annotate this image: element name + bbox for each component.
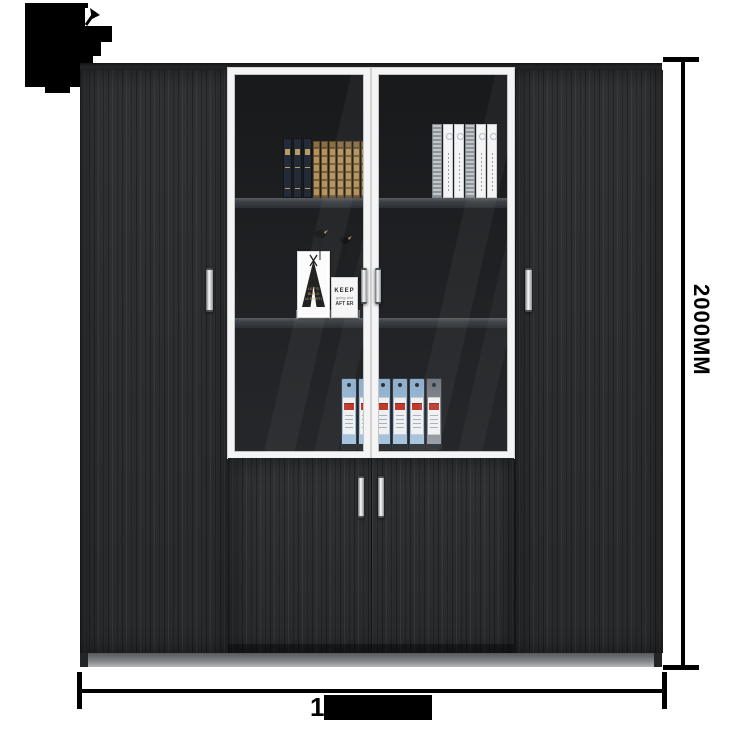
glass-door-handle-right	[375, 268, 381, 304]
height-dimension-label: 2000MM	[688, 284, 714, 376]
lower-door-handle-left	[358, 476, 364, 518]
glass-door-left	[228, 68, 370, 458]
height-dimension-line	[681, 60, 685, 668]
plinth-corner-left	[80, 653, 88, 667]
left-solid-door	[80, 70, 231, 653]
plinth-corner-right	[654, 653, 662, 667]
glass-door-handle-left	[361, 268, 367, 304]
redaction-box	[324, 695, 432, 720]
height-dimension-cap-bottom	[663, 665, 699, 670]
cabinet-plinth	[86, 653, 656, 667]
lower-door-shadow	[228, 644, 514, 653]
width-dimension-tick-right	[662, 672, 667, 709]
lower-door-seam	[371, 458, 372, 653]
right-solid-door	[514, 70, 663, 653]
width-dimension-line	[80, 689, 666, 693]
glass-door-right	[372, 68, 514, 458]
left-door-handle	[206, 268, 213, 312]
width-dimension-label: 1	[310, 694, 324, 720]
height-dimension-cap-top	[663, 57, 699, 62]
product-dimension-image: LET'S BUILD •A FORT• KEEP going and AFT …	[0, 0, 750, 750]
width-dimension-tick-left	[77, 672, 82, 709]
lower-door-handle-right	[378, 476, 384, 518]
right-door-handle	[525, 268, 532, 312]
